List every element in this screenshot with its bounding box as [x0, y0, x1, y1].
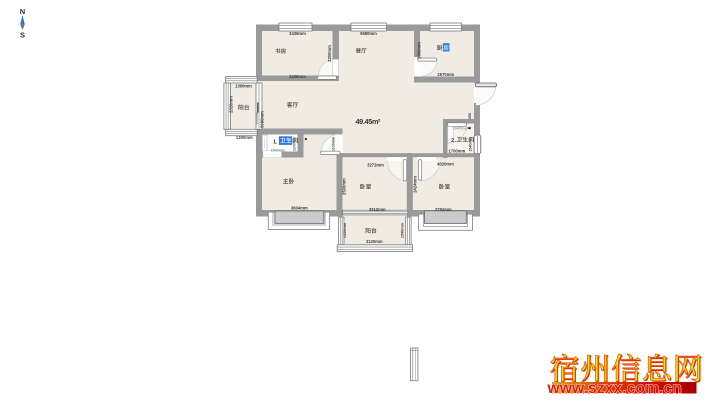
svg-text:2300mm: 2300mm	[417, 42, 422, 59]
svg-text:S: S	[20, 31, 25, 40]
svg-text:3604mm: 3604mm	[291, 205, 308, 210]
svg-text:3436mm: 3436mm	[289, 31, 306, 36]
svg-text:1540mm: 1540mm	[271, 148, 285, 152]
svg-text:1700mm: 1700mm	[448, 149, 465, 154]
svg-text:1300mm: 1300mm	[236, 135, 253, 140]
svg-text:www.szxx.com.cn: www.szxx.com.cn	[547, 380, 682, 397]
svg-text:2424mm: 2424mm	[413, 176, 418, 193]
svg-text:2320mm: 2320mm	[229, 96, 234, 113]
svg-text:2570mm: 2570mm	[437, 72, 454, 77]
svg-text:1590mm: 1590mm	[400, 222, 404, 238]
svg-text:9080mm: 9080mm	[260, 111, 265, 128]
svg-text:9680mm: 9680mm	[360, 31, 377, 36]
svg-text:2784mm: 2784mm	[435, 207, 452, 212]
svg-text:49.45m²: 49.45m²	[355, 117, 381, 126]
svg-text:3120mm: 3120mm	[366, 239, 383, 244]
svg-text:2500mm: 2500mm	[342, 178, 347, 195]
svg-text:N: N	[20, 7, 25, 16]
svg-text:2200mm: 2200mm	[327, 45, 332, 62]
svg-text:1.: 1.	[273, 140, 278, 146]
svg-text:600mm: 600mm	[255, 112, 259, 124]
svg-text:450: 450	[468, 113, 472, 119]
svg-text:1520mm: 1520mm	[343, 222, 347, 238]
svg-text:4020mm: 4020mm	[437, 161, 454, 166]
svg-text:2.: 2.	[451, 138, 456, 144]
svg-text:1100mm: 1100mm	[332, 137, 336, 151]
svg-text:3272mm: 3272mm	[367, 162, 384, 167]
svg-text:1300mm: 1300mm	[235, 84, 252, 89]
svg-text:1347mm: 1347mm	[452, 125, 468, 130]
svg-text:3312mm: 3312mm	[369, 207, 386, 212]
svg-text:3436mm: 3436mm	[289, 74, 306, 79]
